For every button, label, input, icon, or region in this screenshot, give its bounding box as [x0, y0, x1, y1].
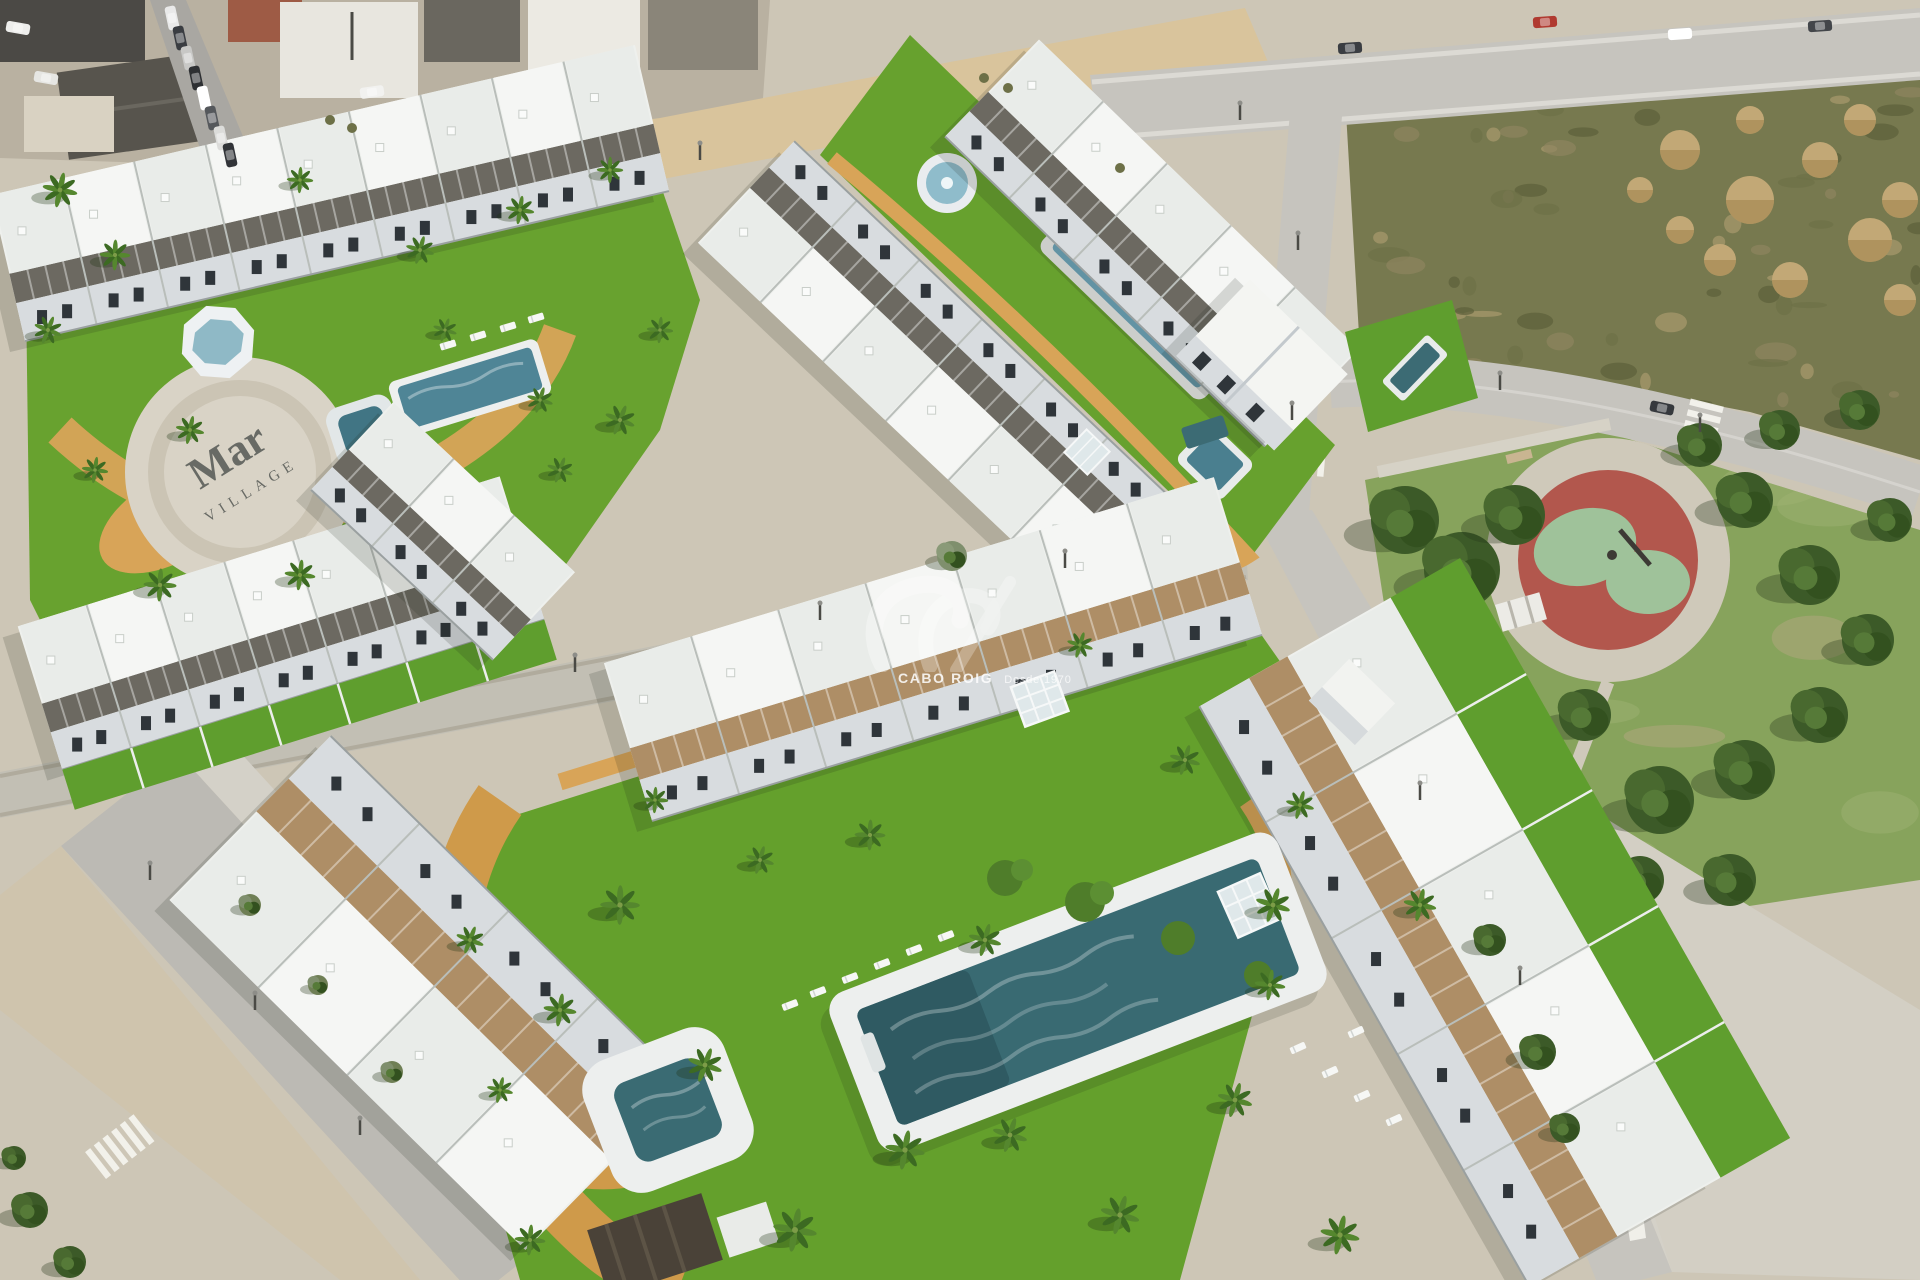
- aerial-render: Mar VILLAGE: [0, 0, 1920, 1280]
- scene-canvas: Mar VILLAGE: [0, 0, 1920, 1280]
- circular-playground: [1486, 438, 1730, 682]
